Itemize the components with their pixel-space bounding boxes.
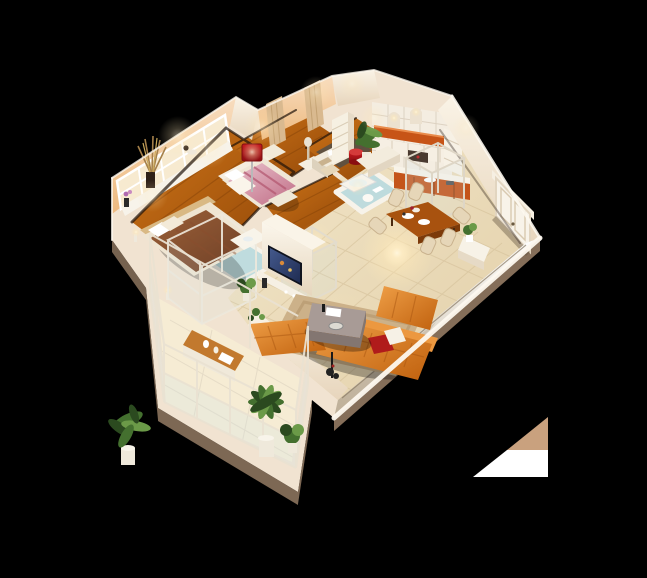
plant-pot: [288, 443, 297, 453]
table-plate: [329, 322, 343, 329]
bottle: [402, 212, 405, 215]
red-drum-stool-top: [349, 149, 363, 156]
bench-vase: [203, 340, 209, 348]
dinnerware: [418, 219, 430, 225]
tv-screen-content: [288, 268, 292, 272]
entry-plant: [469, 223, 477, 231]
console-decor: [284, 290, 287, 293]
apartment-render: [0, 0, 647, 578]
door-knob[interactable]: [511, 222, 514, 225]
vanity-basin: [243, 237, 253, 242]
entry-plant-pot: [466, 235, 473, 242]
bench-vase: [214, 347, 219, 354]
bookshelf: [332, 112, 348, 164]
dresser-mirror: [304, 137, 312, 147]
speaker: [262, 278, 267, 288]
table-bottle: [322, 304, 325, 312]
wine-bottle: [410, 206, 414, 210]
toilet: [363, 194, 374, 202]
parapet-plant: [252, 308, 260, 316]
parapet-plant: [259, 314, 265, 320]
apartment-render-stage: [0, 0, 647, 578]
tv-screen-content: [280, 261, 284, 265]
